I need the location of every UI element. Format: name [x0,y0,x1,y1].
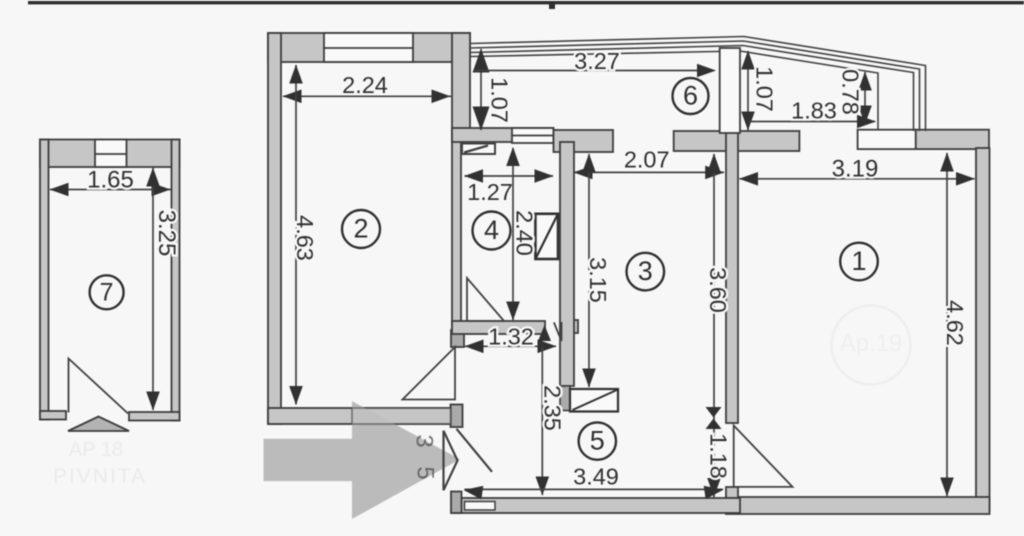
svg-text:0.78: 0.78 [837,69,863,115]
svg-text:1.27: 1.27 [467,179,513,205]
svg-text:Ap.19: Ap.19 [840,330,903,357]
svg-text:1.07: 1.07 [486,77,512,123]
svg-text:1.07: 1.07 [751,66,777,112]
svg-text:2.40: 2.40 [511,210,537,256]
svg-text:5: 5 [412,466,439,479]
svg-text:1.83: 1.83 [791,98,837,124]
svg-text:1: 1 [851,246,866,276]
svg-text:1.65: 1.65 [87,166,134,193]
svg-text:AP 18: AP 18 [69,439,123,461]
svg-text:3.15: 3.15 [585,257,611,303]
svg-text:3.27: 3.27 [574,48,620,74]
svg-text:3: 3 [638,256,653,286]
svg-text:3.49: 3.49 [573,464,619,490]
svg-text:7: 7 [100,278,114,306]
svg-text:4: 4 [484,215,499,245]
svg-text:3.19: 3.19 [832,155,879,182]
svg-text:4.63: 4.63 [292,215,318,261]
svg-text:1.18: 1.18 [705,433,731,479]
svg-text:5: 5 [590,426,605,456]
svg-text:2.07: 2.07 [624,147,670,173]
svg-text:6: 6 [683,81,698,111]
svg-text:2.24: 2.24 [342,72,388,98]
svg-text:3.25: 3.25 [153,210,180,257]
svg-text:1.32: 1.32 [488,324,534,350]
svg-text:3: 3 [411,434,438,447]
svg-text:PIVNITA: PIVNITA [53,465,147,488]
svg-text:3.60: 3.60 [705,267,731,313]
svg-text:4.62: 4.62 [942,300,968,346]
svg-text:2: 2 [353,214,368,244]
svg-text:2.35: 2.35 [539,385,565,431]
